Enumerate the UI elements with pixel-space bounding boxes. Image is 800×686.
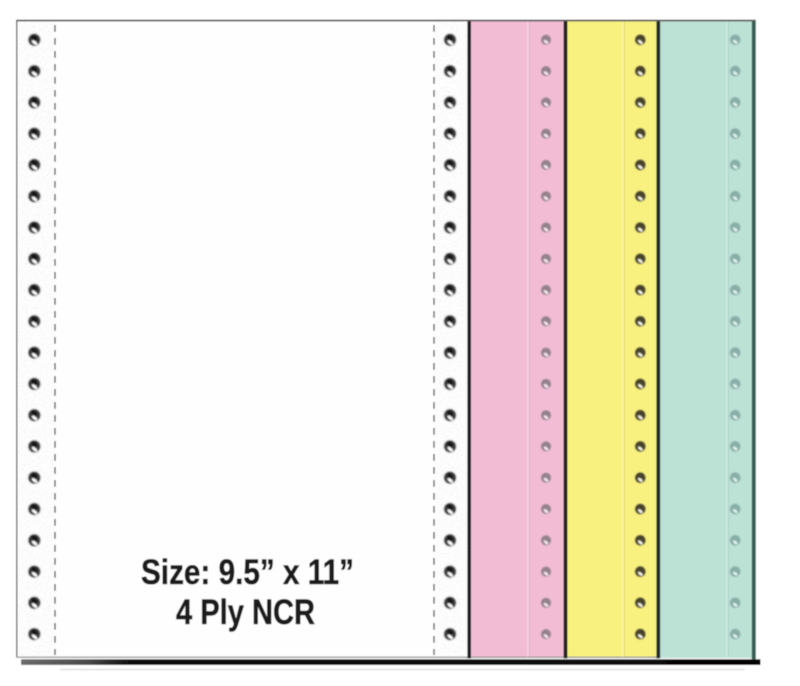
svg-text:Size: 9.5” x 11”: Size: 9.5” x 11” — [141, 553, 354, 592]
svg-text:4 Ply NCR: 4 Ply NCR — [176, 593, 315, 632]
